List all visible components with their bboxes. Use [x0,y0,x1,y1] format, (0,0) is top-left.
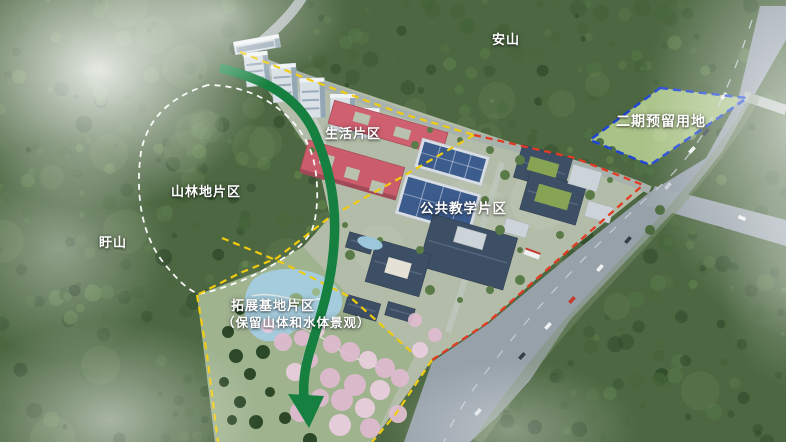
label-expansion-base-note: （保留山体和水体景观） [222,312,371,331]
masterplan-rendering [0,0,786,442]
label-forest-land-zone: 山林地片区 [171,181,241,200]
label-xushan-mountain: 盱山 [99,232,127,251]
label-living-zone: 生活片区 [325,123,381,142]
label-phase2-reserved-land: 二期预留用地 [616,111,706,131]
image-frame: 安山 二期预留用地 生活片区 山林地片区 盱山 公共教学片区 拓展基地片区 （保… [0,0,786,442]
label-public-teaching-zone: 公共教学片区 [420,197,507,217]
label-anshan-mountain: 安山 [492,29,520,48]
